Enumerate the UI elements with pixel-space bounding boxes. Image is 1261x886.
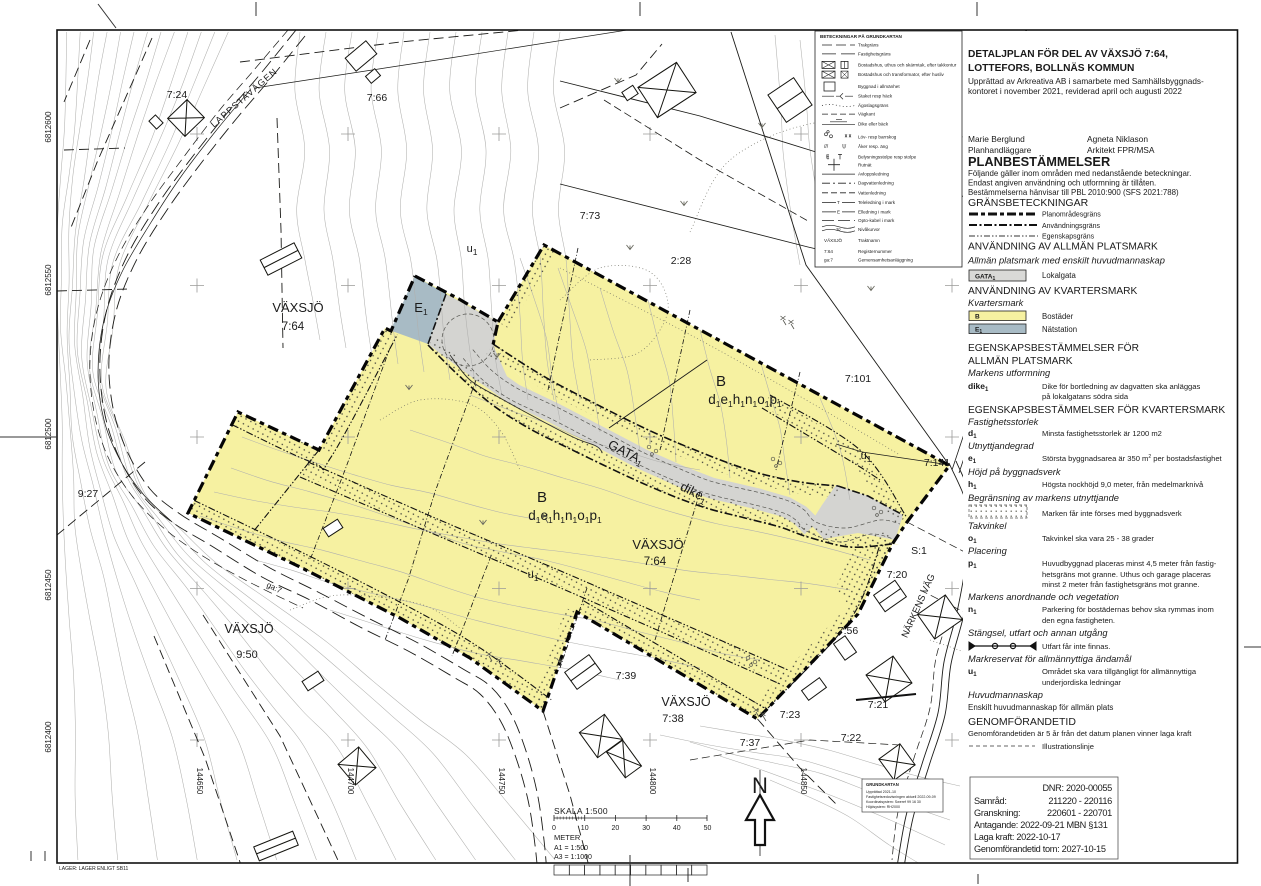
svg-text:Marie Berglund: Marie Berglund (968, 134, 1025, 144)
svg-text:7:64: 7:64 (282, 321, 305, 333)
svg-text:7:56: 7:56 (838, 625, 859, 637)
svg-text:Genomförandetiden är 5 år från: Genomförandetiden är 5 år från det datum… (968, 729, 1192, 738)
svg-text:Fastighetsgräns: Fastighetsgräns (858, 51, 891, 56)
svg-text:Stängsel, utfart och annan utg: Stängsel, utfart och annan utgång (968, 628, 1108, 638)
svg-text:Vägkant: Vägkant (858, 112, 876, 117)
svg-text:SKALA 1:500: SKALA 1:500 (554, 806, 608, 816)
svg-text:7:101: 7:101 (845, 373, 871, 385)
svg-text:Bostäder: Bostäder (1042, 312, 1074, 321)
svg-text:VÄXSJÖ: VÄXSJÖ (661, 695, 711, 709)
svg-text:7:23: 7:23 (780, 709, 801, 721)
svg-text:Bestämmelserna hänvisar till P: Bestämmelserna hänvisar till PBL 2010:90… (968, 188, 1179, 197)
svg-text:7:141: 7:141 (924, 457, 950, 469)
svg-text:Dike för bortledning av dagvat: Dike för bortledning av dagvatten ska an… (1042, 382, 1201, 391)
svg-text:Byggnad i allmänhet: Byggnad i allmänhet (858, 84, 900, 89)
svg-text:VÄXSJÖ: VÄXSJÖ (224, 622, 274, 636)
svg-text:Planområdesgräns: Planområdesgräns (1042, 211, 1101, 219)
svg-text:ANVÄNDNING AV KVARTERSMARK: ANVÄNDNING AV KVARTERSMARK (968, 285, 1137, 297)
svg-text:Elledning i mark: Elledning i mark (858, 209, 891, 214)
svg-text:Löv- resp barrskog: Löv- resp barrskog (858, 134, 897, 139)
svg-text:144800: 144800 (648, 768, 657, 795)
svg-text:Dike eller bäck: Dike eller bäck (858, 121, 889, 126)
svg-text:6812550: 6812550 (44, 264, 53, 296)
svg-text:Registernummer: Registernummer (858, 249, 892, 254)
svg-text:Vattenledning: Vattenledning (858, 190, 886, 195)
svg-text:S:1: S:1 (911, 545, 927, 557)
svg-text:Enskilt huvudmannaskap för all: Enskilt huvudmannaskap för allmän plats (968, 703, 1113, 712)
svg-text:40: 40 (673, 825, 681, 832)
svg-text:Högsta nockhöjd 9,0 meter, frå: Högsta nockhöjd 9,0 meter, från medelmar… (1042, 480, 1204, 489)
svg-text:7:24: 7:24 (167, 89, 188, 101)
svg-text:Användningsgräns: Användningsgräns (1042, 223, 1100, 230)
svg-text:9:50: 9:50 (236, 649, 257, 661)
svg-text:VÄXSJÖ: VÄXSJÖ (632, 537, 683, 552)
svg-text:9:27: 9:27 (78, 488, 99, 500)
svg-text:Parkering för bostädernas beho: Parkering för bostädernas behov ska rymm… (1042, 605, 1214, 614)
svg-text:DETALJPLAN FÖR DEL AV VÄXSJÖ 7: DETALJPLAN FÖR DEL AV VÄXSJÖ 7:64, (968, 47, 1168, 60)
svg-text:Traktnamn: Traktnamn (858, 238, 880, 243)
svg-text:T: T (837, 200, 840, 205)
svg-text:Staket resp häck: Staket resp häck (858, 94, 893, 99)
svg-text:Nätstation: Nätstation (1042, 325, 1077, 334)
svg-text:Koordinatsystem: Sweref 99 16: Koordinatsystem: Sweref 99 16 30 (866, 800, 921, 804)
svg-text:Gemensamhetsanläggning: Gemensamhetsanläggning (858, 258, 913, 263)
svg-text:144850: 144850 (799, 768, 808, 795)
svg-text:Lokalgata: Lokalgata (1042, 271, 1076, 280)
svg-text:PLANBESTÄMMELSER: PLANBESTÄMMELSER (968, 154, 1110, 169)
svg-text:Huvudbyggnad placeras minst 4,: Huvudbyggnad placeras minst 4,5 meter fr… (1042, 559, 1217, 568)
svg-text:Belysningsstolpe resp stolpe: Belysningsstolpe resp stolpe (858, 154, 917, 159)
svg-text:6812450: 6812450 (44, 569, 53, 601)
svg-text:7:39: 7:39 (616, 670, 637, 682)
svg-text:144650: 144650 (195, 768, 204, 795)
svg-text:7:37: 7:37 (740, 737, 761, 749)
svg-text:ga:7: ga:7 (824, 258, 833, 263)
svg-text:Fastighetsredovisningen aktuel: Fastighetsredovisningen aktuell 2022-09-… (866, 795, 936, 799)
svg-text:7:38: 7:38 (662, 713, 683, 725)
svg-text:6812400: 6812400 (44, 721, 53, 753)
svg-text:Bostadshus, uthus och skärmtak: Bostadshus, uthus och skärmtak, efter ta… (858, 62, 957, 67)
svg-text:EGENSKAPSBESTÄMMELSER FÖR: EGENSKAPSBESTÄMMELSER FÖR (968, 342, 1139, 354)
svg-text:7:64: 7:64 (644, 556, 667, 568)
svg-text:Ägoslagsgräns: Ägoslagsgräns (858, 102, 889, 108)
svg-text:GENOMFÖRANDETID: GENOMFÖRANDETID (968, 716, 1076, 728)
svg-text:Begränsning av markens utnyttj: Begränsning av markens utnyttjande (968, 493, 1119, 503)
svg-text:Kvartersmark: Kvartersmark (968, 298, 1025, 308)
svg-text:EGENSKAPSBESTÄMMELSER FÖR KVAR: EGENSKAPSBESTÄMMELSER FÖR KVARTERSMARK (968, 404, 1225, 416)
svg-text:Illustrationslinje: Illustrationslinje (1042, 742, 1094, 751)
svg-text:Granskning:: Granskning: (974, 808, 1020, 818)
svg-text:VÄXSJÖ: VÄXSJÖ (272, 300, 323, 315)
svg-text:Utfart får inte finnas.: Utfart får inte finnas. (1042, 642, 1110, 651)
svg-text:Trakgräns: Trakgräns (858, 43, 879, 48)
svg-text:Höjdsystem: RH2000: Höjdsystem: RH2000 (866, 805, 900, 809)
svg-text:LAGER: LAGER ENLIGT SB11: LAGER: LAGER ENLIGT SB11 (59, 866, 129, 872)
svg-text:Markreservat för allmännyttiga: Markreservat för allmännyttiga ändamål (968, 654, 1132, 664)
svg-text:underjordiska ledningar: underjordiska ledningar (1042, 678, 1121, 687)
svg-text:Upprättad av Arkreativa AB i: Upprättad av Arkreativa AB i samarbete m… (968, 77, 1204, 86)
svg-text:Området ska vara tillgängligt: Området ska vara tillgängligt för allmän… (1042, 667, 1197, 676)
svg-text:0: 0 (552, 825, 556, 832)
svg-text:144750: 144750 (497, 768, 506, 795)
svg-text:minst 2 meter från fastighetsg: minst 2 meter från fastighetsgräns mot g… (1042, 580, 1199, 589)
svg-text:Opto-kabel i mark: Opto-kabel i mark (858, 218, 895, 223)
svg-text:Avloppsledning: Avloppsledning (858, 172, 890, 177)
svg-text:7:20: 7:20 (887, 569, 908, 581)
svg-text:7:21: 7:21 (868, 699, 889, 711)
svg-text:Höjd på byggnadsverk: Höjd på byggnadsverk (968, 467, 1062, 477)
svg-text:Fastighetsstorlek: Fastighetsstorlek (968, 417, 1040, 427)
svg-text:GRÄNSBETECKNINGAR: GRÄNSBETECKNINGAR (968, 197, 1089, 209)
svg-text:6812600: 6812600 (44, 111, 53, 143)
svg-text:Utnyttjandegrad: Utnyttjandegrad (968, 441, 1034, 451)
svg-text:på lokalgatans södra sida: på lokalgatans södra sida (1042, 392, 1129, 401)
svg-text:50: 50 (704, 825, 712, 832)
svg-text:Minsta fastighetsstorlek är 12: Minsta fastighetsstorlek är 1200 m2 (1042, 429, 1162, 438)
svg-text:Rutnät: Rutnät (858, 163, 872, 168)
svg-text:Endast angiven användning och: Endast angiven användning och utformning… (968, 179, 1156, 188)
svg-text:Genomförandetid tom: 2027-10-: Genomförandetid tom: 2027-10-15 (974, 844, 1106, 854)
svg-text:Takvinkel: Takvinkel (968, 521, 1007, 531)
svg-text:Antagande: 2022-09-21 MBN §131: Antagande: 2022-09-21 MBN §131 (974, 820, 1108, 830)
svg-text:2:28: 2:28 (671, 255, 692, 267)
svg-text:B: B (716, 373, 726, 390)
svg-text:ALLMÄN PLATSMARK: ALLMÄN PLATSMARK (968, 355, 1073, 367)
svg-text:GRUNDKARTAN: GRUNDKARTAN (866, 782, 899, 787)
svg-text:Egenskapsgräns: Egenskapsgräns (1042, 234, 1095, 241)
svg-text:kontoret i november 2021, revi: kontoret i november 2021, reviderad apri… (968, 87, 1182, 96)
svg-text:ANVÄNDNING AV ALLMÄN PLATSMARK: ANVÄNDNING AV ALLMÄN PLATSMARK (968, 241, 1158, 253)
svg-text:20: 20 (612, 825, 620, 832)
svg-text:211220 - 220116: 211220 - 220116 (1048, 796, 1112, 806)
svg-text:6812500: 6812500 (44, 418, 53, 450)
svg-text:METER: METER (554, 833, 581, 842)
svg-text:hetsgräns mot granne. Uthus oc: hetsgräns mot granne. Uthus och garage p… (1042, 570, 1211, 579)
svg-text:Takvinkel ska vara 25 - 38 gra: Takvinkel ska vara 25 - 38 grader (1042, 534, 1154, 543)
svg-text:///: /// (824, 144, 829, 150)
svg-text:A3 = 1:1000: A3 = 1:1000 (554, 854, 592, 861)
svg-text:Följande gäller inom områden m: Följande gäller inom områden med nedanst… (968, 169, 1191, 178)
svg-text:Markens utformning: Markens utformning (968, 368, 1051, 378)
svg-text:E: E (837, 209, 840, 214)
svg-text:B: B (537, 489, 547, 506)
svg-text:\|/: \|/ (842, 144, 847, 150)
svg-text:Markens anordnande och vegetat: Markens anordnande och vegetation (968, 592, 1119, 602)
svg-text:7:66: 7:66 (367, 92, 388, 104)
svg-text:220601 - 220701: 220601 - 220701 (1047, 808, 1112, 818)
svg-text:10: 10 (581, 825, 589, 832)
svg-text:144700: 144700 (346, 768, 355, 795)
svg-text:Bostadshus och transformator,: Bostadshus och transformator, efter husl… (858, 72, 944, 77)
svg-text:LOTTEFORS, BOLLNÄS KOMMUN: LOTTEFORS, BOLLNÄS KOMMUN (968, 61, 1134, 74)
svg-text:Nivåkurvor: Nivåkurvor (858, 226, 880, 232)
svg-text:B: B (975, 314, 980, 321)
svg-text:7:22: 7:22 (841, 732, 862, 744)
svg-text:DNR: 2020-00055: DNR: 2020-00055 (1042, 783, 1112, 793)
svg-text:BETECKNINGAR PÅ GRUNDKARTAN: BETECKNINGAR PÅ GRUNDKARTAN (820, 33, 903, 39)
svg-text:Åker resp. äng: Åker resp. äng (858, 143, 888, 149)
svg-text:7:73: 7:73 (580, 210, 601, 222)
svg-text:30: 30 (836, 226, 841, 231)
svg-text:30: 30 (642, 825, 650, 832)
svg-text:Största byggnadsarea är 350 m2: Största byggnadsarea är 350 m2 per bosta… (1042, 454, 1223, 463)
svg-text:7:64: 7:64 (824, 249, 833, 254)
svg-text:Upprättad 2021-10: Upprättad 2021-10 (866, 790, 896, 794)
svg-text:VÄXSJÖ: VÄXSJÖ (824, 237, 843, 243)
svg-text:Agneta Niklason: Agneta Niklason (1087, 134, 1148, 144)
svg-text:Laga kraft: 2022-10-17: Laga kraft: 2022-10-17 (974, 832, 1061, 842)
svg-text:Allmän platsmark med enskilt h: Allmän platsmark med enskilt huvudmannas… (967, 256, 1165, 266)
svg-text:Teleledning i mark: Teleledning i mark (858, 200, 896, 205)
svg-text:A1 = 1:500: A1 = 1:500 (554, 845, 588, 852)
svg-text:den egna fastigheten.: den egna fastigheten. (1042, 616, 1115, 625)
svg-text:Dagvattenledning: Dagvattenledning (858, 181, 894, 186)
svg-text:Huvudmannaskap: Huvudmannaskap (968, 690, 1043, 700)
svg-text:Samråd:: Samråd: (974, 796, 1007, 806)
svg-text:Placering: Placering (968, 546, 1008, 556)
svg-text:Marken får inte förses med byg: Marken får inte förses med byggnadsverk (1042, 509, 1182, 518)
